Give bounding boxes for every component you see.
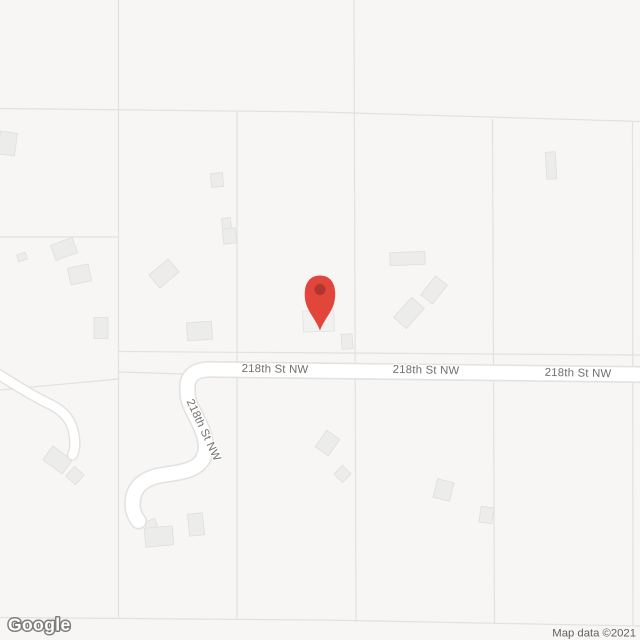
google-logo[interactable]: Google — [8, 615, 71, 635]
building — [0, 131, 18, 156]
building — [210, 173, 223, 188]
building — [94, 318, 108, 339]
building — [187, 513, 204, 536]
building — [479, 506, 494, 524]
road-label: 218th St NW — [242, 363, 309, 376]
map-graphics: 218th St NW 218th St NW 218th St NW 218t… — [0, 0, 640, 640]
building — [545, 152, 556, 179]
map-canvas[interactable]: 218th St NW 218th St NW 218th St NW 218t… — [0, 0, 640, 640]
map-attribution: Map data ©2021 — [552, 628, 636, 640]
building — [390, 251, 425, 265]
building — [144, 526, 174, 547]
building — [186, 321, 212, 341]
pin-inner-circle — [314, 284, 325, 295]
road-label: 218th St NW — [545, 367, 612, 380]
building — [222, 228, 236, 244]
road-label: 218th St NW — [393, 364, 460, 377]
building — [341, 334, 353, 350]
